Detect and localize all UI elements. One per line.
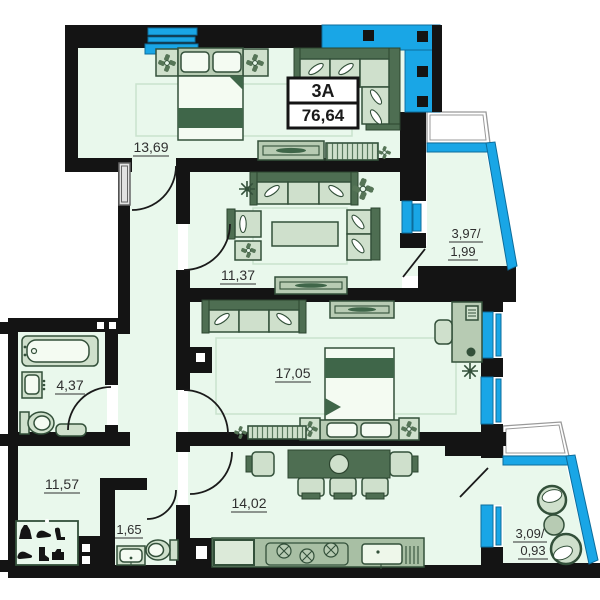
area-living: 11,37 <box>221 267 255 283</box>
pillow <box>181 52 209 72</box>
area-bedroom2: 17,05 <box>275 365 310 381</box>
floor-plan-canvas: 3A 76,64 13,69 11,37 17,05 4,37 11,57 1,… <box>0 0 600 600</box>
window-bedroom1-top <box>148 28 197 35</box>
unit-total-area: 76,64 <box>302 106 345 125</box>
tv-icon <box>276 148 306 153</box>
unit-name: 3A <box>311 81 334 101</box>
desk-lamp <box>467 348 476 357</box>
hallway-closet <box>16 519 78 565</box>
bed-blanket <box>178 108 243 128</box>
tv-icon <box>295 283 327 288</box>
window-bedroom2-b <box>481 377 493 424</box>
wall-left-upper <box>65 25 78 165</box>
wall-loggia-bottom <box>418 266 516 302</box>
closet-door-knob <box>45 519 49 523</box>
area-bathroom: 4,37 <box>56 377 83 393</box>
entrance-door <box>119 163 130 205</box>
area-balcony-half: 0,93 <box>520 543 545 558</box>
area-balcony-full: 3,09/ <box>516 526 545 541</box>
window-bedroom2-a <box>481 312 493 358</box>
armchair <box>235 211 261 237</box>
area-wc: 1,65 <box>116 522 141 537</box>
coffee-table <box>272 222 338 246</box>
wall-living-right <box>400 112 426 201</box>
area-loggia-full: 3,97/ <box>452 226 481 241</box>
bath-bench <box>56 424 86 436</box>
area-hallway: 11,57 <box>45 476 79 492</box>
window-kitchen <box>481 505 493 547</box>
plate <box>330 455 349 474</box>
wall-bottom-left <box>8 565 212 578</box>
floor-plan: 3A 76,64 13,69 11,37 17,05 4,37 11,57 1,… <box>0 0 600 600</box>
pillow <box>327 423 357 437</box>
pillow-icon <box>240 216 246 233</box>
corner-sofa-back <box>299 48 400 59</box>
balcony-passage <box>481 458 503 505</box>
chair <box>252 452 274 476</box>
toilet-tank <box>170 540 178 560</box>
neighbor-balcony-top <box>427 112 490 143</box>
wall-balcony-bottom <box>495 563 600 578</box>
balcony-door-living <box>402 201 412 233</box>
unit-info-box: 3A 76,64 <box>288 78 358 128</box>
area-bedroom1: 13,69 <box>133 139 168 155</box>
loggia-glazing-front <box>427 143 488 152</box>
chaise-back <box>371 208 380 260</box>
corridor-floor-upper <box>130 158 178 334</box>
chair <box>390 452 412 476</box>
area-loggia-half: 1,99 <box>450 244 475 259</box>
plant-icon <box>239 181 255 197</box>
balcony-glazing-front <box>503 456 568 465</box>
corridor-floor-lower <box>118 332 178 448</box>
kitchen-sink <box>362 544 402 564</box>
pillow <box>213 52 241 72</box>
tv-icon <box>348 307 376 312</box>
round-table <box>544 515 564 535</box>
pillow <box>361 423 391 437</box>
fridge <box>214 540 254 565</box>
sofa-back <box>208 300 300 310</box>
plant-icon <box>462 363 478 379</box>
desk-chair <box>435 320 452 344</box>
bed-blanket <box>325 358 394 378</box>
sofa-back <box>256 172 352 182</box>
wall-wc-top <box>100 478 147 490</box>
wall-wc-left <box>100 478 115 567</box>
area-kitchen: 14,02 <box>231 495 266 511</box>
